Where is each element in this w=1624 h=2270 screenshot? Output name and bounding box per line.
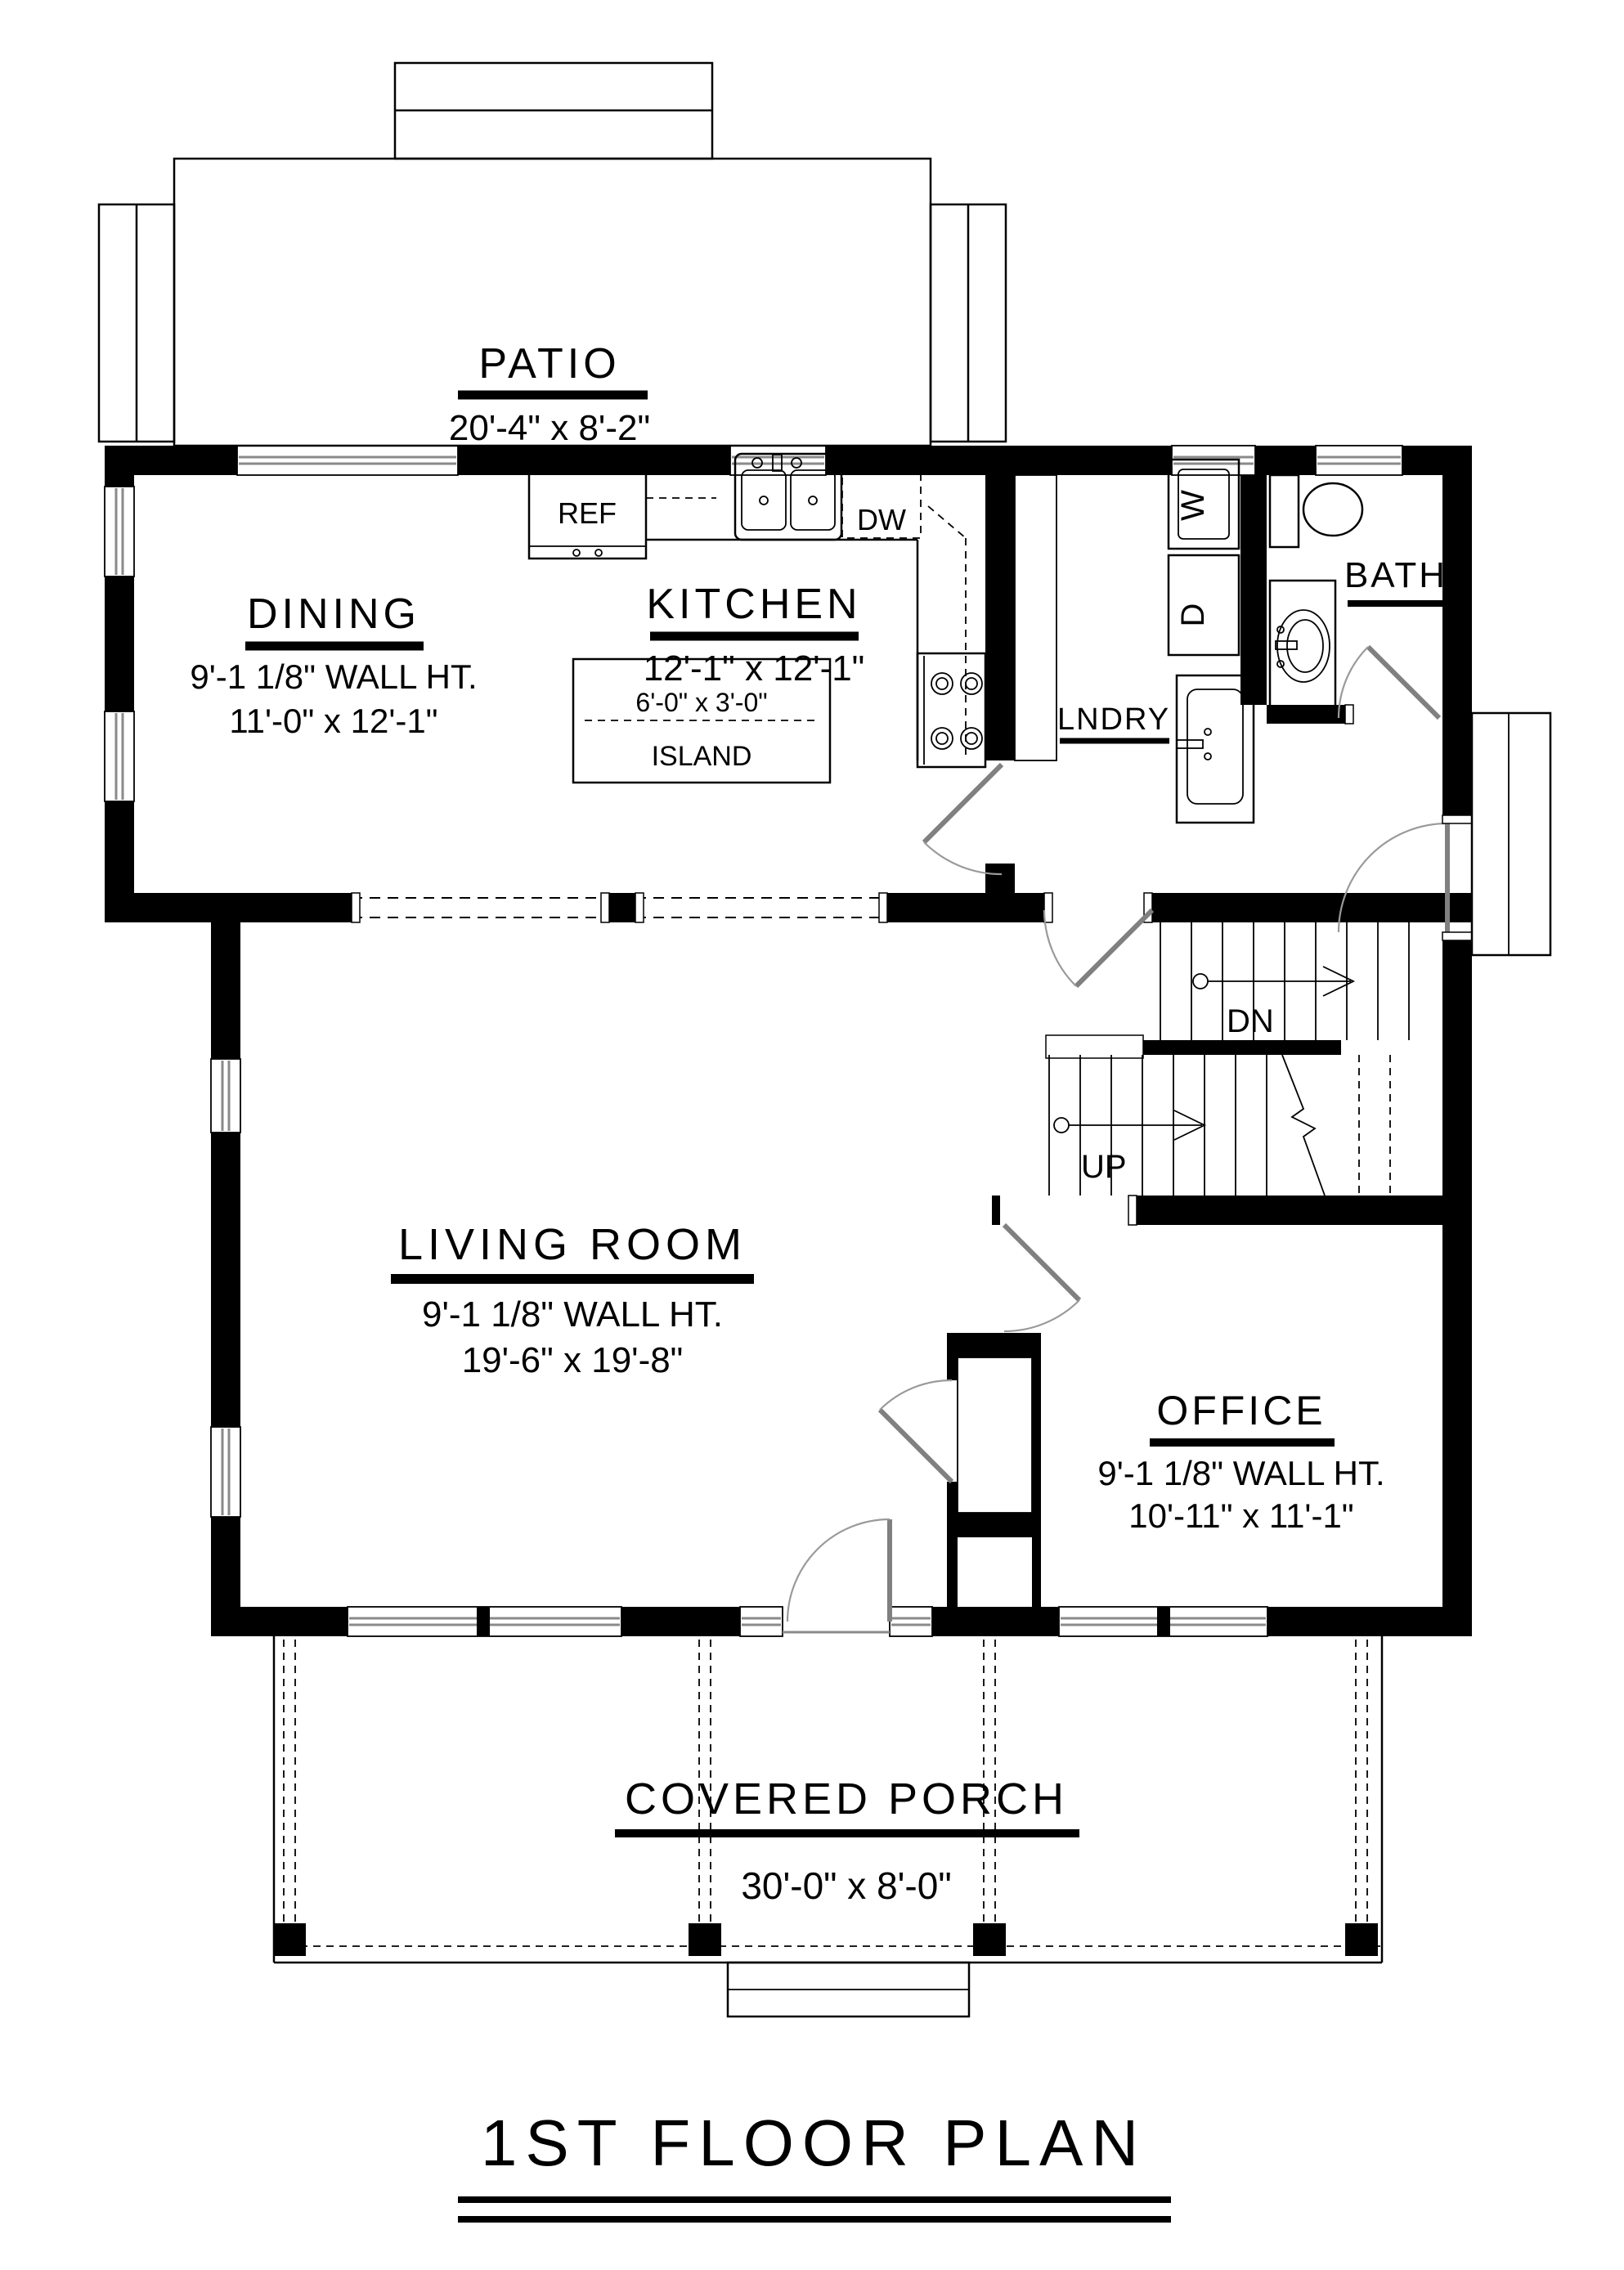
dining-window-top [237, 446, 458, 475]
dw-label: DW [857, 503, 906, 536]
front-step [728, 1963, 969, 2017]
svg-text:11'-0" x 12'-1": 11'-0" x 12'-1" [229, 702, 437, 740]
svg-text:9'-1 1/8" WALL HT.: 9'-1 1/8" WALL HT. [422, 1294, 723, 1335]
living-window-left-2 [211, 1427, 240, 1517]
dryer: D [1169, 555, 1239, 655]
svg-text:COVERED PORCH: COVERED PORCH [625, 1774, 1068, 1824]
island-label: ISLAND [652, 741, 752, 772]
floor-plan-sheet: PATIO 20'-4" x 8'-2" [0, 0, 1624, 2270]
plan-title: 1ST FLOOR PLAN [481, 2106, 1146, 2179]
pantry-hatch [1015, 475, 1056, 760]
svg-text:30'-0" x 8'-0": 30'-0" x 8'-0" [741, 1864, 951, 1907]
svg-text:10'-11" x 11'-1": 10'-11" x 11'-1" [1128, 1496, 1353, 1535]
laundry-label: LNDRY [1057, 702, 1170, 741]
island-dims: 6'-0" x 3'-0" [635, 688, 767, 717]
patio-outline [99, 63, 1006, 446]
svg-text:9'-1 1/8" WALL HT.: 9'-1 1/8" WALL HT. [190, 657, 477, 696]
dining-window-left-1 [105, 487, 134, 576]
stairs-dn-label: DN [1227, 1003, 1274, 1039]
svg-text:9'-1 1/8" WALL HT.: 9'-1 1/8" WALL HT. [1097, 1454, 1384, 1492]
dining-window-left-2 [105, 711, 134, 801]
svg-text:DINING: DINING [247, 590, 420, 638]
bath-label: BATH [1344, 555, 1447, 603]
toilet-icon [1270, 475, 1362, 547]
patio-name: PATIO [478, 340, 620, 388]
entry-stoop [1472, 713, 1550, 955]
svg-text:LNDRY: LNDRY [1057, 702, 1170, 737]
porch-label: COVERED PORCH 30'-0" x 8'-0" [615, 1774, 1079, 1907]
floor-plan-drawing: PATIO 20'-4" x 8'-2" [0, 0, 1624, 2270]
stair-landing-cap [1046, 1035, 1143, 1058]
front-door [783, 1519, 890, 1632]
office-label: OFFICE 9'-1 1/8" WALL HT. 10'-11" x 11'-… [1097, 1388, 1384, 1535]
closet-door [880, 1380, 952, 1482]
svg-text:LIVING ROOM: LIVING ROOM [398, 1220, 747, 1269]
office-window-front [1059, 1607, 1267, 1636]
svg-text:19'-6" x 19'-8": 19'-6" x 19'-8" [462, 1340, 684, 1380]
bath-window [1316, 446, 1402, 475]
bath-sink [1270, 581, 1335, 711]
laundry-door [1044, 910, 1152, 986]
patio-dims: 20'-4" x 8'-2" [449, 408, 650, 448]
kitchen-label: KITCHEN 12'-1" x 12'-1" [644, 581, 865, 689]
living-window-front [348, 1607, 621, 1636]
stairs-up: UP [1049, 1055, 1390, 1196]
washer-label: W [1175, 490, 1211, 521]
washer: W [1169, 460, 1239, 549]
covered-porch [273, 1636, 1382, 2017]
patio-label: PATIO 20'-4" x 8'-2" [449, 340, 650, 448]
sheet-title: 1ST FLOOR PLAN [458, 2106, 1171, 2219]
svg-text:BATH: BATH [1344, 555, 1447, 595]
stairs-dn: DN [1160, 922, 1409, 1040]
living-window-left-1 [211, 1059, 240, 1133]
svg-text:OFFICE: OFFICE [1156, 1388, 1326, 1433]
kitchen-door [924, 765, 1002, 874]
office-door [1004, 1225, 1079, 1331]
stair-rail [1143, 1040, 1341, 1055]
stairs-up-label: UP [1081, 1149, 1127, 1185]
dryer-label: D [1175, 603, 1211, 627]
svg-text:12'-1" x 12'-1": 12'-1" x 12'-1" [644, 648, 865, 689]
ref-label: REF [558, 496, 617, 530]
closet-chase-hatch [958, 1357, 1032, 1513]
dining-label: DINING 9'-1 1/8" WALL HT. 11'-0" x 12'-1… [190, 590, 477, 740]
porch-posts [273, 1923, 1378, 1956]
living-room-label: LIVING ROOM 9'-1 1/8" WALL HT. 19'-6" x … [391, 1220, 754, 1380]
room-labels: DINING 9'-1 1/8" WALL HT. 11'-0" x 12'-1… [190, 555, 1447, 1907]
range-stove [917, 653, 985, 767]
svg-text:KITCHEN: KITCHEN [646, 581, 861, 628]
